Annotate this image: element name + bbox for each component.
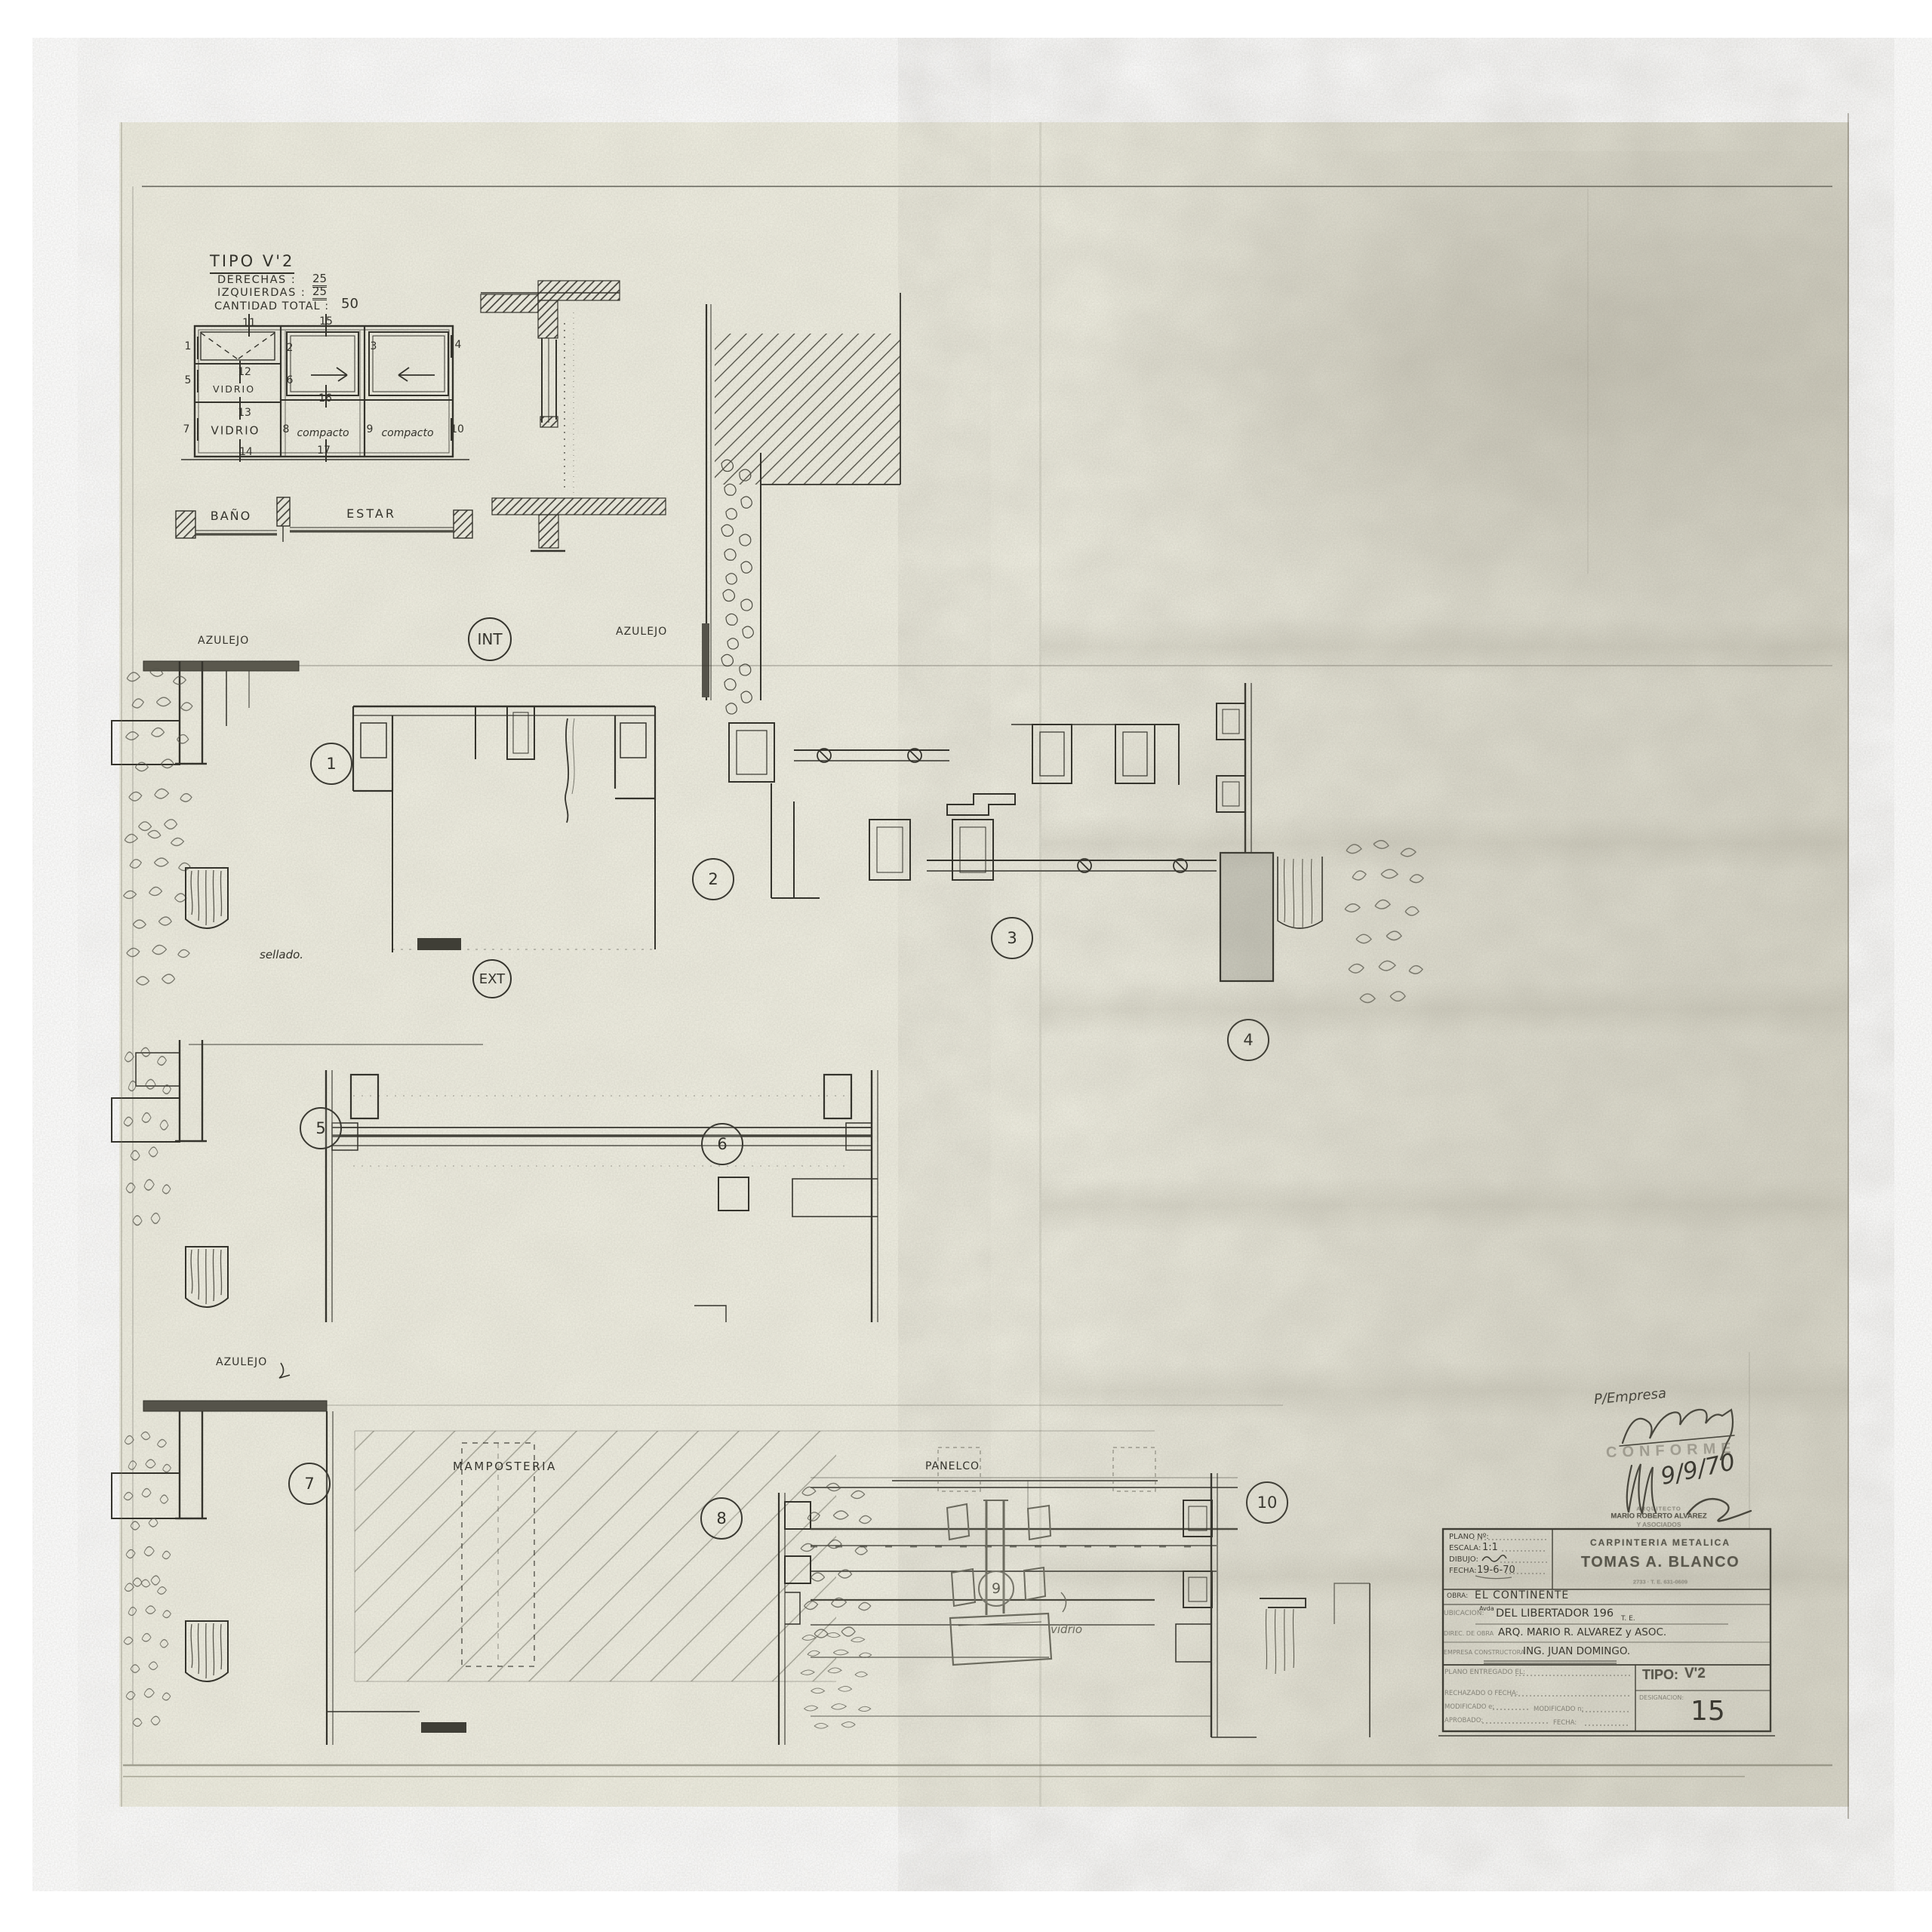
detail-marker-2: 2 [692,858,734,900]
detail-marker-3: 3 [991,917,1033,959]
company-line3: 2733 · T. E. 631-0609 [1633,1579,1687,1585]
constructora-label: EMPRESA CONSTRUCTORA [1444,1650,1524,1656]
marker-number: 8 [716,1509,726,1527]
tick-4: 4 [455,340,462,350]
panelco-label: PANELCO [925,1461,980,1472]
tick-6: 6 [287,375,294,386]
vidrio-label: vidrio [1051,1624,1082,1635]
cell-compacto-mid: compacto [297,428,349,438]
cantidad-label: CANTIDAD TOTAL : [214,301,329,312]
derechas-label: DERECHAS : [217,275,296,286]
modificado2-label: MODIFICADO n: [1534,1706,1583,1713]
stamp-alvarez: MARIO ROBERTO ALVAREZ [1611,1512,1706,1520]
cell-vidrio-upper: VIDRIO [213,385,255,395]
tick-3: 3 [371,341,377,352]
izquierdas-label: IZQUIERDAS : [217,288,306,299]
cell-vidrio-lower: VIDRIO [211,426,260,437]
marker-number: 7 [304,1475,314,1493]
obra-value: EL CONTINENTE [1475,1590,1569,1601]
tick-14: 14 [239,447,253,457]
sheet-number: 15 [1690,1698,1725,1725]
fecha2-label: FECHA: [1553,1720,1577,1727]
direccion-value: ARQ. MARIO R. ALVAREZ y ASOC. [1498,1628,1666,1638]
ubicacion-sup: Avda [1479,1606,1494,1612]
marker-number: 10 [1257,1494,1278,1512]
tick-5: 5 [185,375,192,386]
cell-compacto-right: compacto [381,428,433,438]
marker-number: 9 [992,1580,1001,1597]
detail-marker-8: 8 [700,1497,743,1540]
tick-7: 7 [183,424,190,435]
ubicacion-label: UBICACION: [1444,1611,1484,1617]
constructora-value: ING. JUAN DOMINGO. [1523,1647,1630,1657]
dibujo-label: DIBUJO: [1449,1556,1478,1564]
int-reference-circle: INT [468,617,512,661]
azulejo-bottom-label: AZULEJO [216,1357,267,1367]
marker-number: 2 [708,870,718,888]
room-bano: BAÑO [211,510,251,522]
direccion-label: DIREC. DE OBRA [1444,1631,1494,1637]
tick-17: 17 [317,445,331,456]
detail-marker-10: 10 [1246,1481,1288,1524]
fecha-label: FECHA: [1449,1567,1477,1575]
tick-8: 8 [283,424,290,435]
mamposteria-label: MAMPOSTERIA [453,1461,557,1472]
detail-marker-9: 9 [978,1571,1014,1607]
fecha-value: 19-6-70 [1477,1565,1515,1575]
tick-11: 11 [242,318,256,328]
designacion-label: DESIGNACION: [1639,1695,1684,1701]
detail-marker-7: 7 [288,1463,331,1505]
company-line2: TOMAS A. BLANCO [1581,1555,1740,1570]
cantidad-value: 50 [341,297,358,311]
tick-12: 12 [238,367,251,377]
ext-reference-circle: EXT [472,959,512,998]
stamp-arquitecto: ARQUITECTO [1636,1506,1681,1512]
tick-1: 1 [185,341,192,352]
azulejo-right-label: AZULEJO [616,626,667,637]
detail-marker-1: 1 [310,743,352,785]
sellado-label: sellado. [260,949,303,961]
int-label: INT [477,630,502,648]
marker-number: 1 [326,755,336,773]
ubicacion-value: DEL LIBERTADOR 196 [1496,1608,1614,1620]
marker-number: 4 [1243,1031,1253,1049]
detail-marker-4: 4 [1227,1019,1269,1061]
company-line1: CARPINTERIA METALICA [1590,1538,1730,1547]
escala-label: ESCALA: [1449,1545,1481,1552]
type-title: TIPO V'2 [210,254,294,274]
obra-label: OBRA: [1447,1593,1468,1600]
ubicacion-te: T. E. [1621,1616,1635,1623]
entregado-label: PLANO ENTREGADO EL: [1444,1669,1525,1676]
escala-value: 1:1 [1482,1543,1498,1552]
detail-marker-5: 5 [300,1107,342,1149]
tipo-value: V'2 [1684,1666,1706,1681]
izquierdas-value: 25 [312,286,327,300]
rechazado-label: RECHAZADO O FECHA: [1444,1690,1518,1697]
plano-no-label: PLANO Nº: [1449,1534,1489,1541]
scanned-drawing-sheet: TIPO V'2 DERECHAS : 25 IZQUIERDAS : 25 C… [0,0,1932,1932]
tick-9: 9 [367,424,374,435]
modificado1-label: MODIFICADO e: [1444,1704,1494,1711]
marker-number: 5 [315,1119,325,1137]
tick-2: 2 [287,343,294,353]
tick-13: 13 [238,408,251,418]
tipo-label: TIPO: [1642,1668,1678,1681]
marker-number: 3 [1007,929,1017,947]
marker-number: 6 [717,1135,727,1153]
aprobado-label: APROBADO: [1444,1718,1483,1724]
azulejo-left-label: AZULEJO [198,635,249,646]
room-estar: ESTAR [346,508,396,520]
ext-label: EXT [479,971,505,987]
tick-15: 15 [319,316,333,327]
tick-10: 10 [451,424,464,435]
detail-marker-6: 6 [701,1123,743,1165]
tick-16: 16 [318,393,332,404]
stamp-asociados: Y ASOCIADOS [1636,1521,1681,1528]
